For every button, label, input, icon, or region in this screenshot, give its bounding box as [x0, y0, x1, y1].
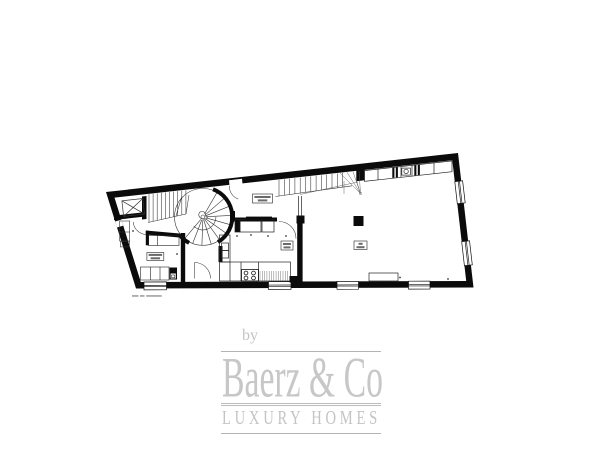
- svg-text:Baerz & Co: Baerz & Co: [222, 346, 383, 409]
- svg-text:LUXURY HOMES: LUXURY HOMES: [222, 408, 381, 429]
- svg-text:by: by: [242, 327, 258, 344]
